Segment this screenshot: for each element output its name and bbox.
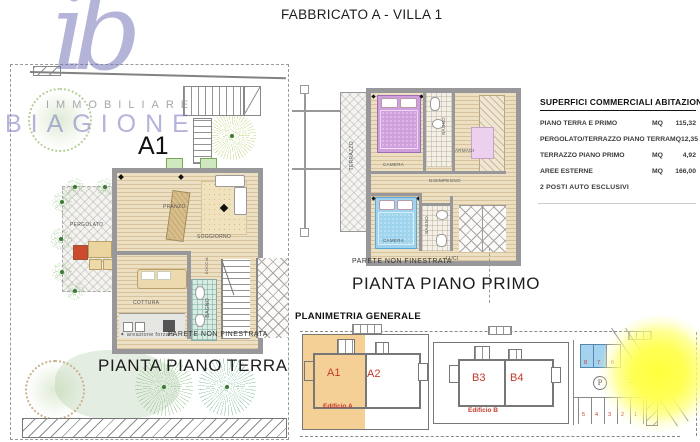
bump-b-left [449,365,459,383]
bagno-top-label: BAGNO [442,117,447,135]
floorplan-sheet: FABBRICATO A - VILLA 1 PERGOLATO A1 [0,0,700,442]
outdoor-chair-red [73,245,88,260]
bump-b-right [551,367,561,383]
edificio-a-footprint [313,353,421,409]
pergolato-label: PERGOLATO [70,223,103,228]
surface-value: 115,32 [670,120,696,127]
wall-h1 [371,171,506,174]
surface-label: TERRAZZO PIANO PRIMO [540,152,652,159]
unit-divider-b [504,361,506,405]
slat-canopy [183,86,245,116]
unit-divider-a [365,355,367,407]
surface-row: TERRAZZO PIANO PRIMO MQ 4,92 [540,152,696,159]
divano-pillow-2 [157,271,171,280]
corner-dot-1 [118,174,124,180]
sink-icon [135,322,145,332]
surface-row: PERGOLATO/TERRAZZO PIANO TERRA MQ 12,35 [540,136,696,143]
soggiorno-label: SOGGIORNO [197,235,231,240]
stairs-primo [459,205,506,252]
site-unit-b3: B3 [472,372,485,384]
outdoor-chair-1 [89,259,102,270]
wall-h2 [371,193,421,196]
ground-floor-unit-label: A1 [138,132,169,161]
surfaces-heading: SUPERFICI COMMERCIALI ABITAZIONE [540,97,696,111]
site-plan-heading: PLANIMETRIA GENERALE [295,311,421,322]
surface-unit: MQ [670,136,681,143]
pillow-2 [400,98,417,108]
wall-note-terra: PARETE NON FINESTRATA [168,331,268,338]
luci-note: LUCI [446,257,459,262]
terrazzo-label: TERRAZZO [350,141,355,170]
ventilation-note: ✦ areazione forzata [120,333,174,339]
wall-note-primo: PARETE NON FINESTRATA [352,258,452,265]
surface-row: AREE ESTERNE MQ 166,00 [540,168,696,175]
stair-center-line [482,206,483,252]
surface-row: PIANO TERRA E PRIMO MQ 115,32 [540,120,696,127]
wc-bottom-fixture [436,234,447,247]
sofa-side [234,187,247,215]
pergolato-plant-3 [52,262,72,282]
edificio-b-zone: B3 B4 Edificio B [433,342,569,424]
bump-a-left [304,361,314,381]
partition-wall-h [117,251,189,255]
stair-icon-a1 [337,339,355,354]
sink-fixture [195,286,205,300]
surface-unit: MQ [652,168,670,175]
surface-value: 4,92 [670,152,696,159]
bagno-bottom-label: BAGNO [425,216,430,234]
corner-dot-2 [178,174,184,180]
pergolato-plant-2 [50,228,72,250]
disimpegno-label: DISIMPEGNO [429,179,461,184]
bump-a-right [418,363,428,381]
stair-icon-b4 [508,349,522,360]
armadi-label: ARMADI [455,149,474,154]
site-unit-a1: A1 [327,367,340,379]
dot-cam1-a [371,94,375,98]
wc-top-fixture [430,97,440,111]
outdoor-table [88,241,112,258]
neighbour-stair [256,258,288,338]
camera-bottom-label: CAMERA [383,239,404,244]
first-floor-title: PIANTA PIANO PRIMO [352,274,540,294]
garage-box-1 [352,324,382,334]
ground-floor-building: PRANZO SOGGIORNO COTTURA BAGNO DOCCIA [112,168,263,354]
bagno-terra-label: BAGNO [206,298,211,318]
space-3-label: 3 [608,412,611,418]
internal-stair-terra [221,259,250,339]
road-hatch-strip [22,418,287,438]
pranzo-label: PRANZO [163,205,186,210]
shower-pink [471,127,494,159]
surface-label: PERGOLATO/TERRAZZO PIANO TERRA [540,136,670,143]
bed-cover-purple [380,110,418,149]
terrazzo-area: TERRAZZO [340,92,368,232]
cottura-label: COTTURA [133,301,159,306]
surface-label: PIANO TERRA E PRIMO [540,120,652,127]
sofa-top [215,175,245,187]
wall-b [452,93,455,171]
camera-top-label: CAMERA [383,163,404,168]
edificio-b-label: Edificio B [468,407,498,414]
divider-line [538,203,696,204]
surface-value: 166,00 [670,168,696,175]
stair-diagonal [221,259,234,295]
tree-flower-top [28,88,92,152]
garage-box-2 [488,326,512,335]
tree-flower-bottom [25,360,85,420]
pergolato-plant-4 [66,178,84,196]
edificio-a-zone: A1 A2 Edificio A [302,334,429,430]
stall-line-2 [591,398,592,424]
fan-icon: ✦ [120,332,127,338]
post-cap-2 [300,228,309,237]
post-cap-1 [300,85,309,94]
stair-icon-a2 [375,342,389,354]
canopy-corner [243,86,261,116]
ground-floor-title: PIANTA PIANO TERRA [98,356,288,376]
pergolato-plant-6 [66,282,84,300]
pillow-4 [397,200,413,210]
pergola-beam-2 [292,168,340,170]
space-4-label: 4 [595,412,598,418]
pillow-3 [379,200,395,210]
surfaces-panel: SUPERFICI COMMERCIALI ABITAZIONE PIANO T… [540,97,696,191]
surface-value: 12,35 [681,136,698,143]
sink-bottom-fixture [436,210,448,220]
surface-unit: MQ [652,152,670,159]
pillow-1 [381,98,398,108]
surface-unit: MQ [652,120,670,127]
surfaces-footnote: 2 POSTI AUTO ESCLUSIVI [540,184,696,191]
pergola-beam-1 [292,110,340,112]
pergolato-plant-1 [52,192,72,212]
site-unit-b4: B4 [510,372,523,384]
dining-table [166,190,191,242]
wall-e [450,196,453,251]
page-title: FABBRICATO A - VILLA 1 [281,7,442,22]
space-8-label: 8 [584,360,587,366]
parking-boundary-left [573,340,574,425]
surface-label: AREE ESTERNE [540,168,652,175]
bed-purple [377,95,421,153]
sun-glow [598,316,700,434]
space-5-label: 5 [582,412,585,418]
wc-fixture [195,314,205,327]
doccia-label: DOCCIA [205,257,209,274]
edificio-a-label: Edificio A [323,403,353,410]
hob-icon [123,322,133,332]
stair-icon-b3 [474,346,490,360]
divano-pillow-1 [141,271,155,280]
site-unit-a2: A2 [367,368,380,380]
bagno-primo-top: BAGNO [426,93,452,167]
stall-line-1 [578,398,579,424]
tree-burst-top [208,112,256,160]
first-floor-building: CAMERA BAGNO ARMADI DISIMPEGNO CAMERA [366,88,521,266]
bagno-primo-bottom: BAGNO [422,206,450,251]
site-boundary-bottom [300,436,680,437]
